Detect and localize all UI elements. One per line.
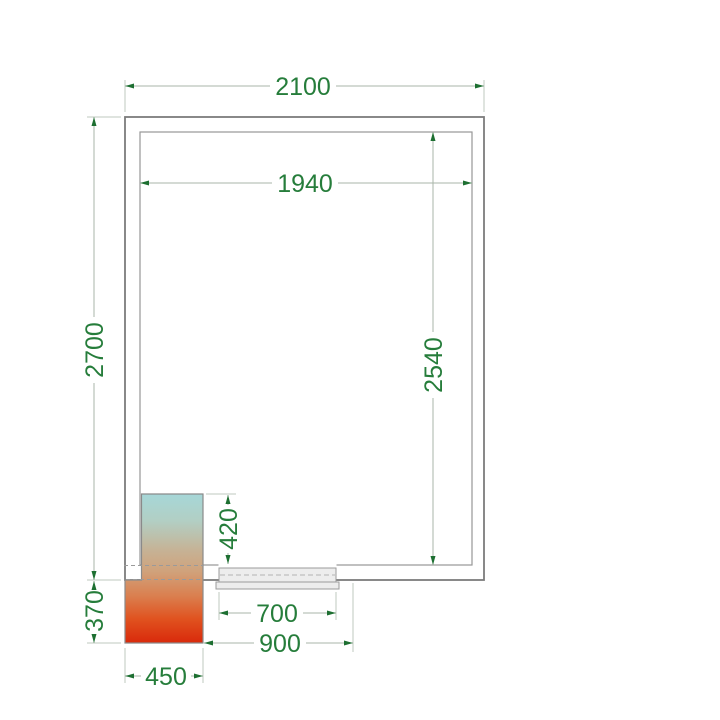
arrowhead bbox=[463, 181, 472, 186]
arrowhead bbox=[92, 571, 97, 580]
floor-plan-drawing: 2100 1940 2700 2540 420 bbox=[0, 0, 720, 720]
arrowhead bbox=[475, 84, 484, 89]
dimension-unit-recess: 420 bbox=[206, 494, 243, 564]
arrowhead bbox=[431, 556, 436, 565]
cooling-unit-body bbox=[125, 494, 203, 643]
dimension-label-door-opening: 700 bbox=[256, 600, 298, 628]
arrowhead bbox=[92, 117, 97, 126]
arrowhead bbox=[226, 495, 231, 504]
dimension-label-door-overall: 900 bbox=[259, 630, 301, 658]
dimension-door-opening: 700 bbox=[219, 592, 336, 628]
arrowhead bbox=[92, 581, 97, 590]
dimension-label-outer-height: 2700 bbox=[81, 322, 109, 378]
dimension-label-unit-protrusion: 370 bbox=[81, 590, 109, 632]
dimension-inner-height: 2540 bbox=[420, 132, 448, 565]
arrowhead bbox=[204, 641, 213, 646]
arrowhead bbox=[140, 181, 149, 186]
dimension-label-unit-recess: 420 bbox=[215, 508, 243, 550]
dimension-label-inner-height: 2540 bbox=[420, 337, 448, 393]
arrowhead bbox=[92, 634, 97, 643]
door-sill bbox=[216, 582, 339, 589]
cold-room-plan-svg: 2100 1940 2700 2540 420 bbox=[0, 0, 720, 720]
dimension-unit-width: 450 bbox=[125, 648, 203, 691]
cooling-unit bbox=[124, 494, 203, 643]
arrowhead bbox=[431, 132, 436, 141]
door bbox=[216, 568, 339, 589]
arrowhead bbox=[219, 611, 228, 616]
arrowhead bbox=[344, 641, 353, 646]
dimension-label-outer-width: 2100 bbox=[275, 73, 331, 101]
dimension-outer-height: 2700 bbox=[81, 117, 121, 580]
arrowhead bbox=[327, 611, 336, 616]
dimension-unit-protrusion: 370 bbox=[81, 581, 121, 643]
dimension-label-unit-width: 450 bbox=[145, 663, 187, 691]
arrowhead bbox=[125, 674, 134, 679]
arrowhead bbox=[125, 84, 134, 89]
dimension-inner-width: 1940 bbox=[140, 170, 472, 198]
dimension-outer-width: 2100 bbox=[125, 73, 484, 112]
arrowhead bbox=[194, 674, 203, 679]
dimension-label-inner-width: 1940 bbox=[277, 170, 333, 198]
